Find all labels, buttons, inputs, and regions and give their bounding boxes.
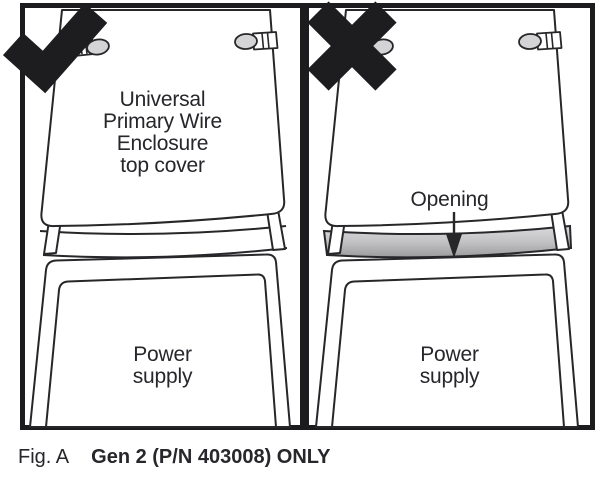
- cover-latch-right: [519, 32, 562, 50]
- figure-a-illustration: Universal Primary Wire Enclosure top cov…: [0, 0, 610, 480]
- cover-label: Universal Primary Wire Enclosure top cov…: [20, 89, 305, 177]
- figure-caption-text: Gen 2 (P/N 403008) ONLY: [91, 446, 330, 468]
- check-icon: [0, 0, 115, 100]
- latch-pin-icon: [519, 33, 542, 49]
- power-supply-right: [316, 254, 578, 427]
- opening-label: Opening: [304, 189, 595, 211]
- cross-icon: [301, 0, 403, 97]
- cover-latch-right: [235, 32, 278, 50]
- power-supply-label-right: Power supply: [304, 344, 595, 388]
- power-supply-left: [30, 254, 290, 427]
- figure-caption: Fig. AGen 2 (P/N 403008) ONLY: [18, 446, 331, 468]
- latch-pin-icon: [235, 33, 258, 49]
- power-supply-label-left: Power supply: [20, 344, 305, 388]
- figure-number: Fig. A: [18, 446, 69, 468]
